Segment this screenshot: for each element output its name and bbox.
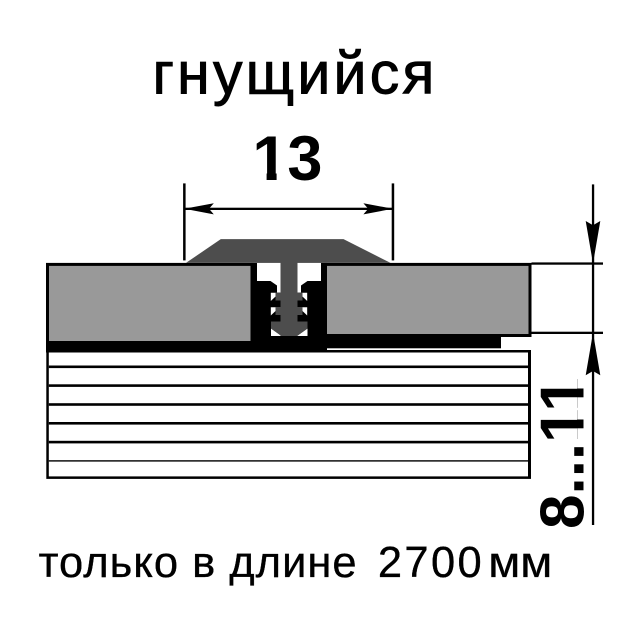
svg-text:только в длине: только в длине	[39, 539, 358, 587]
svg-text:8...11: 8...11	[529, 377, 598, 529]
svg-text:13: 13	[252, 124, 322, 194]
svg-text:гнущийся: гнущийся	[152, 41, 437, 107]
svg-text:2700: 2700	[378, 539, 484, 587]
svg-text:мм: мм	[488, 537, 552, 586]
